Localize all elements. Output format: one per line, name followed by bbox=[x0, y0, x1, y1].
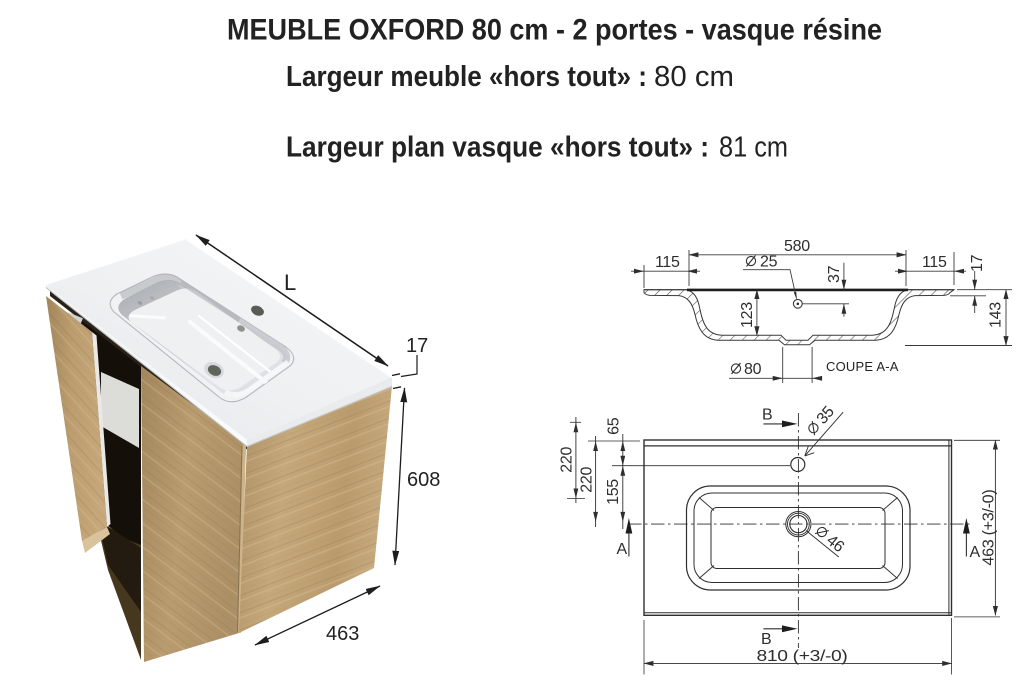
svg-text:155: 155 bbox=[605, 479, 622, 505]
svg-text:MEUBLE OXFORD 80 cm - 2 portes: MEUBLE OXFORD 80 cm - 2 portes - vasque … bbox=[227, 14, 882, 47]
svg-text:80: 80 bbox=[744, 361, 762, 378]
svg-text:463: 463 bbox=[326, 623, 359, 645]
svg-text:810 (+3/-0): 810 (+3/-0) bbox=[757, 648, 848, 665]
svg-text:25: 25 bbox=[760, 254, 778, 271]
svg-text:463 (+3/-0): 463 (+3/-0) bbox=[981, 490, 998, 566]
svg-text:17: 17 bbox=[406, 335, 428, 357]
svg-text:65: 65 bbox=[606, 417, 623, 435]
svg-text:608: 608 bbox=[407, 469, 440, 491]
svg-text:COUPE A-A: COUPE A-A bbox=[826, 359, 899, 374]
svg-text:220: 220 bbox=[579, 467, 596, 493]
svg-text:143: 143 bbox=[988, 302, 1005, 328]
svg-text:81 cm: 81 cm bbox=[719, 132, 788, 164]
svg-text:35: 35 bbox=[814, 403, 838, 427]
svg-text:A: A bbox=[970, 544, 981, 561]
svg-text:Largeur plan vasque «hors tout: Largeur plan vasque «hors tout» : bbox=[286, 132, 709, 164]
svg-text:80 cm: 80 cm bbox=[654, 61, 734, 93]
svg-text:B: B bbox=[761, 631, 771, 648]
svg-text:B: B bbox=[762, 407, 772, 424]
svg-text:A: A bbox=[617, 541, 628, 558]
svg-text:17: 17 bbox=[969, 254, 986, 272]
svg-text:580: 580 bbox=[784, 238, 810, 255]
svg-text:L: L bbox=[284, 270, 296, 295]
svg-text:115: 115 bbox=[922, 254, 947, 271]
svg-text:Largeur meuble «hors tout» :: Largeur meuble «hors tout» : bbox=[286, 61, 647, 93]
svg-text:37: 37 bbox=[826, 265, 843, 283]
svg-text:123: 123 bbox=[739, 302, 756, 328]
svg-text:115: 115 bbox=[655, 254, 680, 271]
svg-text:220: 220 bbox=[559, 447, 576, 473]
